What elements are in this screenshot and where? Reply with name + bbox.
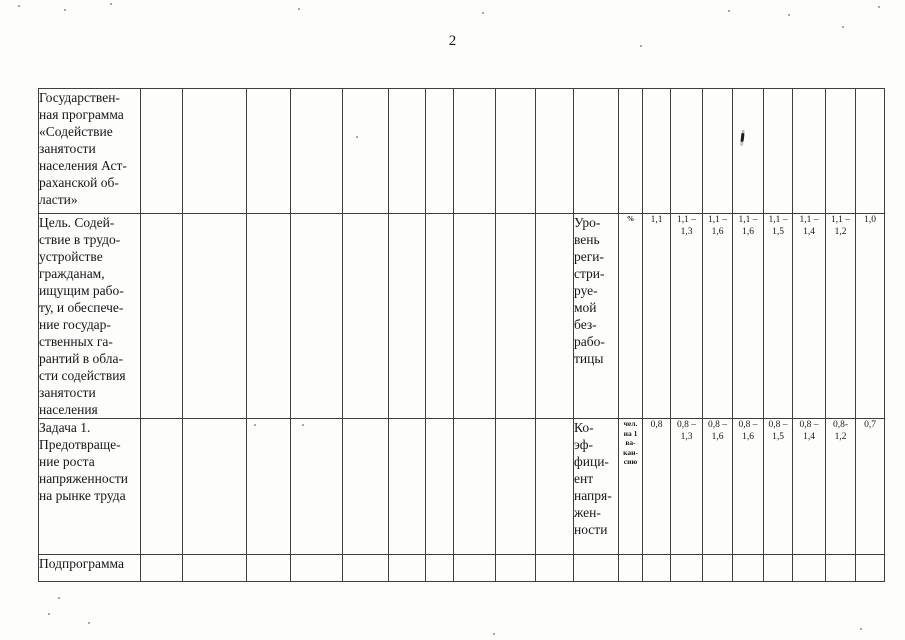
empty-cell: [389, 419, 426, 555]
indicator-value-cell: [671, 89, 703, 214]
indicator-value-cell: 0,7: [856, 419, 885, 555]
indicator-value-cell: 0,8 –1,6: [703, 419, 733, 555]
unit-cell: [619, 555, 643, 582]
scan-speck: [48, 613, 50, 615]
scan-speck: [58, 597, 60, 599]
indicator-value-cell: 1,1 –1,5: [764, 214, 793, 419]
empty-cell: [291, 419, 343, 555]
indicator-value-cell: 1,0: [856, 214, 885, 419]
indicator-value-cell: [764, 89, 793, 214]
row-title-cell: Подпрограмма: [39, 555, 141, 582]
empty-cell: [389, 555, 426, 582]
empty-cell: [141, 214, 183, 419]
scan-speck: [640, 45, 642, 47]
table-row-goal: Цель. Содей-ствие в трудо-устройствеграж…: [39, 214, 885, 419]
unit-cell: [619, 89, 643, 214]
empty-cell: [343, 89, 389, 214]
indicator-value-cell: [643, 555, 671, 582]
empty-cell: [183, 555, 247, 582]
indicator-name-cell: [574, 555, 619, 582]
empty-cell: [141, 555, 183, 582]
empty-cell: [454, 419, 496, 555]
empty-cell: [183, 89, 247, 214]
scan-speck: [878, 6, 880, 8]
empty-cell: [536, 419, 574, 555]
indicator-value-cell: 0,8: [643, 419, 671, 555]
page-number: 2: [0, 33, 905, 50]
empty-cell: [426, 214, 454, 419]
empty-cell: [496, 419, 536, 555]
empty-cell: [454, 555, 496, 582]
scan-speck: [64, 9, 66, 11]
empty-cell: [426, 89, 454, 214]
unit-cell: %: [619, 214, 643, 419]
empty-cell: [496, 555, 536, 582]
scan-speck: [860, 628, 862, 630]
unit-cell: чел.на 1ва-кан-сию: [619, 419, 643, 555]
indicator-value-cell: [643, 89, 671, 214]
indicator-value-cell: [703, 89, 733, 214]
indicator-value-cell: [793, 555, 826, 582]
empty-cell: [141, 419, 183, 555]
empty-cell: [247, 89, 291, 214]
program-indicators-table: Государствен-ная программа«Содействиезан…: [38, 88, 885, 582]
empty-cell: [247, 555, 291, 582]
empty-cell: [389, 214, 426, 419]
scan-speck: [482, 12, 484, 14]
table-row-subprogram: Подпрограмма: [39, 555, 885, 582]
indicator-name-cell: [574, 89, 619, 214]
scanned-document-page: 2 Государствен-ная программа«Содействиез…: [0, 0, 905, 640]
scan-speck: [356, 136, 358, 138]
indicator-name-cell: Уро-веньреги-стри-руе-мойбез-рабо-тицы: [574, 214, 619, 419]
empty-cell: [343, 419, 389, 555]
empty-cell: [183, 419, 247, 555]
indicator-value-cell: [703, 555, 733, 582]
scan-speck: [88, 622, 90, 624]
scan-speck: [110, 3, 112, 5]
indicator-value-cell: 0,8 –1,6: [733, 419, 764, 555]
table-row-state-program: Государствен-ная программа«Содействиезан…: [39, 89, 885, 214]
empty-cell: [291, 555, 343, 582]
indicator-value-cell: [764, 555, 793, 582]
empty-cell: [343, 555, 389, 582]
row-title-cell: Государствен-ная программа«Содействиезан…: [39, 89, 141, 214]
indicator-value-cell: [826, 89, 856, 214]
row-title-cell: Задача 1.Предотвраще-ние ростанапряженно…: [39, 419, 141, 555]
indicator-value-cell: [733, 89, 764, 214]
scan-speck: [18, 5, 20, 7]
indicator-value-cell: [856, 555, 885, 582]
empty-cell: [141, 89, 183, 214]
indicator-value-cell: 1,1 –1,4: [793, 214, 826, 419]
indicator-value-cell: [671, 555, 703, 582]
empty-cell: [247, 214, 291, 419]
empty-cell: [291, 214, 343, 419]
table-row-task-1: Задача 1.Предотвраще-ние ростанапряженно…: [39, 419, 885, 555]
indicator-value-cell: [826, 555, 856, 582]
scan-speck: [788, 14, 790, 16]
empty-cell: [536, 214, 574, 419]
empty-cell: [426, 555, 454, 582]
indicator-value-cell: 1,1: [643, 214, 671, 419]
empty-cell: [454, 214, 496, 419]
indicator-value-cell: 1,1 –1,2: [826, 214, 856, 419]
indicator-value-cell: 1,1 –1,6: [733, 214, 764, 419]
indicator-value-cell: 1,1 –1,6: [703, 214, 733, 419]
empty-cell: [183, 214, 247, 419]
scan-speck: [842, 26, 844, 28]
empty-cell: [426, 419, 454, 555]
empty-cell: [247, 419, 291, 555]
empty-cell: [536, 555, 574, 582]
scan-speck: [493, 633, 495, 635]
empty-cell: [496, 89, 536, 214]
empty-cell: [454, 89, 496, 214]
indicator-name-cell: Ко-эф-фици-ентнапря-жен-ности: [574, 419, 619, 555]
empty-cell: [389, 89, 426, 214]
indicator-value-cell: [856, 89, 885, 214]
empty-cell: [536, 89, 574, 214]
empty-cell: [496, 214, 536, 419]
indicator-value-cell: 0,8-1,2: [826, 419, 856, 555]
indicator-value-cell: 0,8 –1,5: [764, 419, 793, 555]
indicator-value-cell: 0,8 –1,4: [793, 419, 826, 555]
scan-speck: [302, 424, 304, 426]
empty-cell: [291, 89, 343, 214]
indicator-value-cell: 1,1 –1,3: [671, 214, 703, 419]
row-title-cell: Цель. Содей-ствие в трудо-устройствеграж…: [39, 214, 141, 419]
empty-cell: [343, 214, 389, 419]
indicator-value-cell: 0,8 –1,3: [671, 419, 703, 555]
indicator-value-cell: [793, 89, 826, 214]
scan-speck: [298, 8, 300, 10]
scan-speck: [254, 424, 256, 426]
indicator-value-cell: [733, 555, 764, 582]
scan-speck: [728, 10, 730, 12]
